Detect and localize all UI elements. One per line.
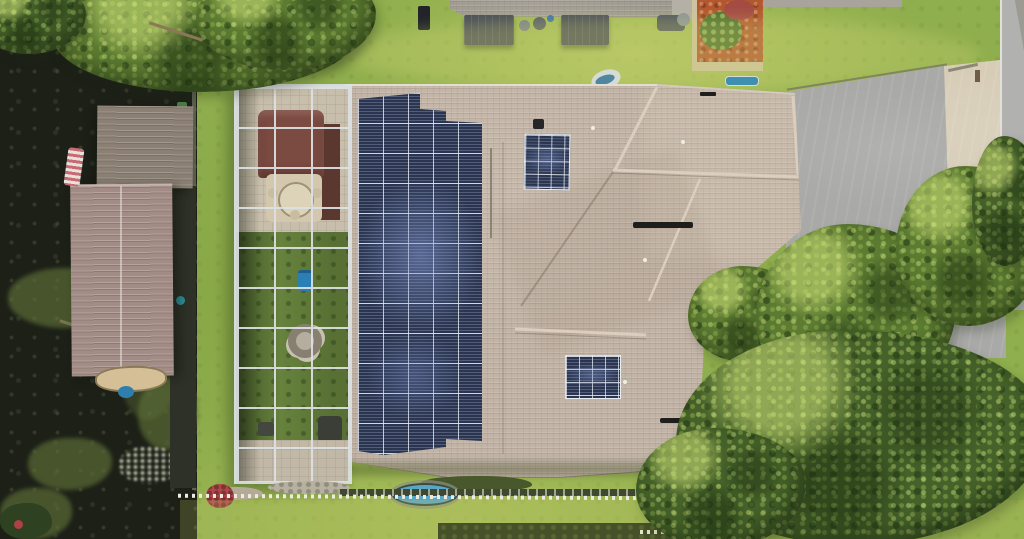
neighbor-roof-eave xyxy=(757,0,902,7)
boathouse-ridge xyxy=(120,186,122,372)
mailbox xyxy=(975,70,980,82)
corner-flower xyxy=(14,520,23,529)
aerial-photo xyxy=(0,0,1024,539)
kiddie-pool xyxy=(725,76,759,86)
pipe-vents xyxy=(591,126,685,384)
boathouse-upper-roof xyxy=(97,106,194,189)
boathouse-lower-roof xyxy=(70,184,174,377)
boat-cover-blue xyxy=(118,386,134,398)
screen-cage-frame xyxy=(234,84,352,484)
dock-item xyxy=(176,296,185,305)
corner-bush xyxy=(0,503,52,539)
roof-vents xyxy=(633,92,716,423)
red-plant xyxy=(724,0,754,20)
oak-canopy-right xyxy=(636,428,806,539)
dock xyxy=(170,186,196,488)
street-asphalt xyxy=(1010,0,1024,62)
dark-object xyxy=(418,6,430,30)
screen-enclosure xyxy=(234,84,352,484)
